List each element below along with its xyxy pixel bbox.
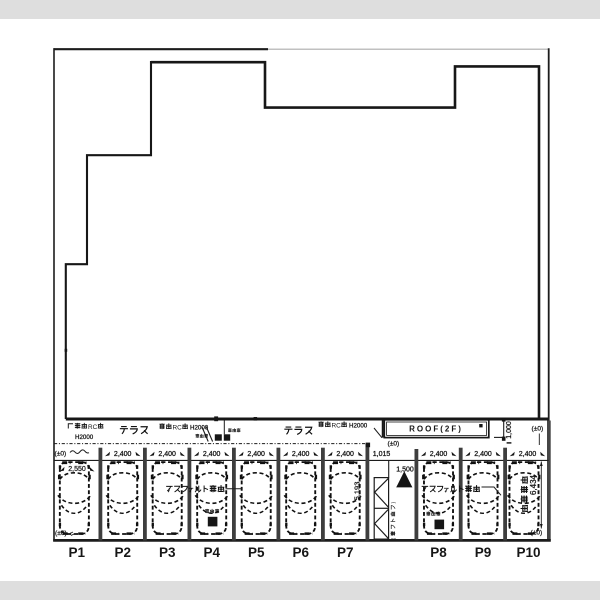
svg-text:H2000: H2000 [190, 424, 209, 431]
svg-text:RC: RC [332, 422, 342, 429]
svg-text:H2000: H2000 [75, 434, 94, 441]
svg-text:2,400: 2,400 [292, 451, 310, 458]
svg-text:6,434: 6,434 [529, 474, 538, 495]
svg-text:(±0): (±0) [55, 451, 67, 458]
svg-text:2,400: 2,400 [430, 451, 448, 458]
svg-text:2,400: 2,400 [203, 451, 221, 458]
svg-text:RC: RC [88, 424, 98, 431]
svg-text:P10: P10 [516, 545, 540, 560]
svg-text:H2000: H2000 [349, 422, 368, 429]
svg-text:(±0): (±0) [532, 426, 544, 433]
svg-text:(±0): (±0) [55, 530, 67, 537]
svg-text:2,400: 2,400 [247, 451, 265, 458]
svg-text:(±0): (±0) [388, 441, 400, 448]
svg-text:P3: P3 [159, 545, 176, 560]
svg-text:1,500: 1,500 [396, 466, 414, 473]
svg-text:1,000: 1,000 [506, 421, 513, 439]
svg-text:P7: P7 [337, 545, 354, 560]
svg-text:(±0): (±0) [531, 530, 543, 537]
svg-text:ROOF(2F): ROOF(2F) [409, 425, 463, 434]
svg-text:2,400: 2,400 [158, 451, 176, 458]
svg-text:P9: P9 [475, 545, 492, 560]
svg-text:P2: P2 [114, 545, 131, 560]
svg-text:P8: P8 [430, 545, 447, 560]
svg-text:5,193: 5,193 [353, 482, 362, 501]
svg-text:P4: P4 [203, 545, 220, 560]
svg-text:2,400: 2,400 [336, 451, 354, 458]
svg-text:P6: P6 [292, 545, 309, 560]
svg-text:2,400: 2,400 [519, 451, 537, 458]
svg-text:2,400: 2,400 [474, 451, 492, 458]
svg-text:1,015: 1,015 [373, 451, 391, 458]
svg-text:RC: RC [173, 424, 183, 431]
svg-text:2,400: 2,400 [114, 451, 132, 458]
svg-text:2,550: 2,550 [68, 466, 86, 473]
svg-text:P5: P5 [248, 545, 265, 560]
svg-text:P1: P1 [68, 545, 85, 560]
